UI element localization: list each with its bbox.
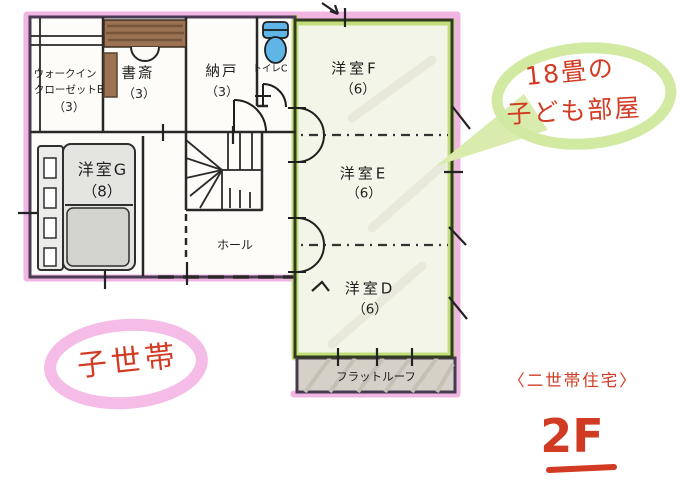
room-label-room-g: 洋室G [78, 162, 128, 178]
floor-plan-page: ウォークイン クローゼットB （3） 書斎 （3） 納戸 （3） トイレC 洋室… [0, 0, 680, 492]
room-label-room-f: 洋室F [331, 62, 379, 77]
room-size-study: （3） [123, 88, 156, 101]
room-label-flat-roof: フラットルーフ [336, 371, 416, 383]
room-size-closet: （3） [53, 101, 85, 113]
room-size-room-d: （6） [352, 303, 388, 317]
room-label-toilet: トイレC [252, 64, 287, 74]
room-size-storage: （3） [206, 86, 239, 99]
room-size-room-e: （6） [346, 187, 382, 201]
room-label-storage: 納戸 [206, 65, 239, 80]
children-room-note-line2: 子ども部屋 [506, 95, 642, 127]
floor-label: 2F [540, 413, 603, 459]
desk [104, 20, 186, 47]
room-label-hall: ホール [217, 239, 253, 251]
floor-underline [549, 467, 614, 470]
house-type-label: 〈二世帯住宅〉 [508, 373, 638, 390]
room-size-room-g: （8） [82, 185, 122, 200]
room-label-closet-line2: クローゼットB [34, 85, 104, 96]
room-label-closet-line1: ウォークイン [34, 69, 97, 80]
room-label-study: 書斎 [122, 67, 155, 82]
room-size-room-f: （6） [340, 83, 376, 97]
room-label-room-e: 洋室E [340, 167, 388, 182]
toilet-fixture [263, 22, 288, 63]
room-label-room-d: 洋室D [345, 282, 396, 297]
bookshelf [104, 53, 117, 97]
